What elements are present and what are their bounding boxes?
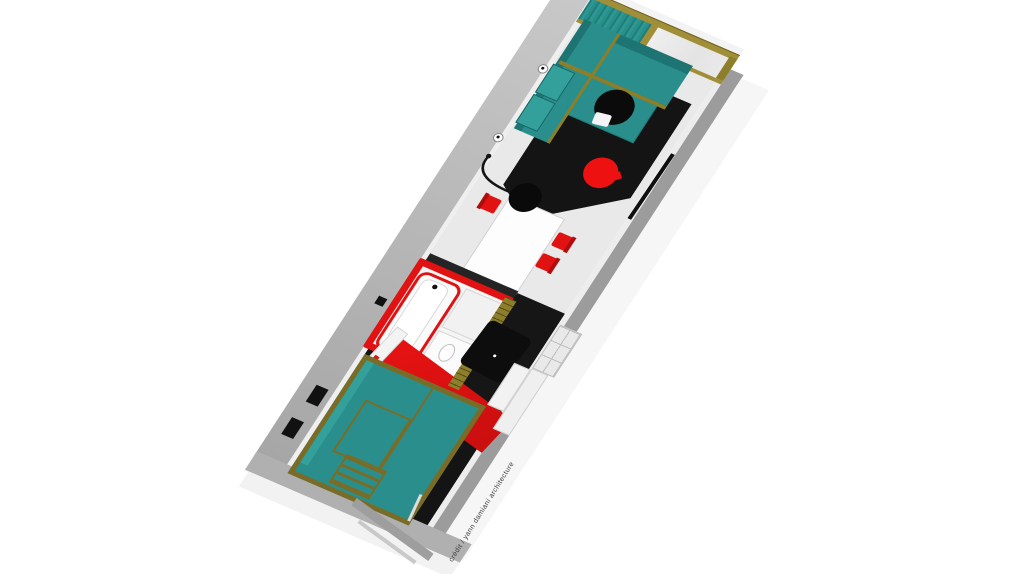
screenshot-canvas: crédit / yann damiani architecture — [0, 0, 1024, 574]
